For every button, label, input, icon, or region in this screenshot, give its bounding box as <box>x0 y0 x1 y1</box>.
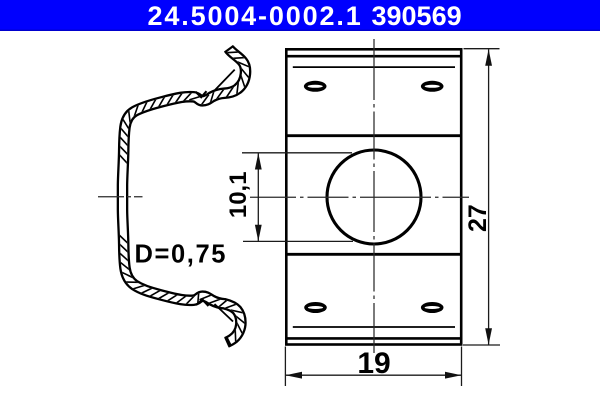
svg-text:390569: 390569 <box>372 1 462 31</box>
svg-text:27: 27 <box>464 204 492 232</box>
svg-text:D=0,75: D=0,75 <box>135 240 228 268</box>
svg-text:24.5004-0002.1: 24.5004-0002.1 <box>148 1 363 31</box>
svg-text:19: 19 <box>357 347 390 380</box>
svg-text:10,1: 10,1 <box>225 171 252 218</box>
